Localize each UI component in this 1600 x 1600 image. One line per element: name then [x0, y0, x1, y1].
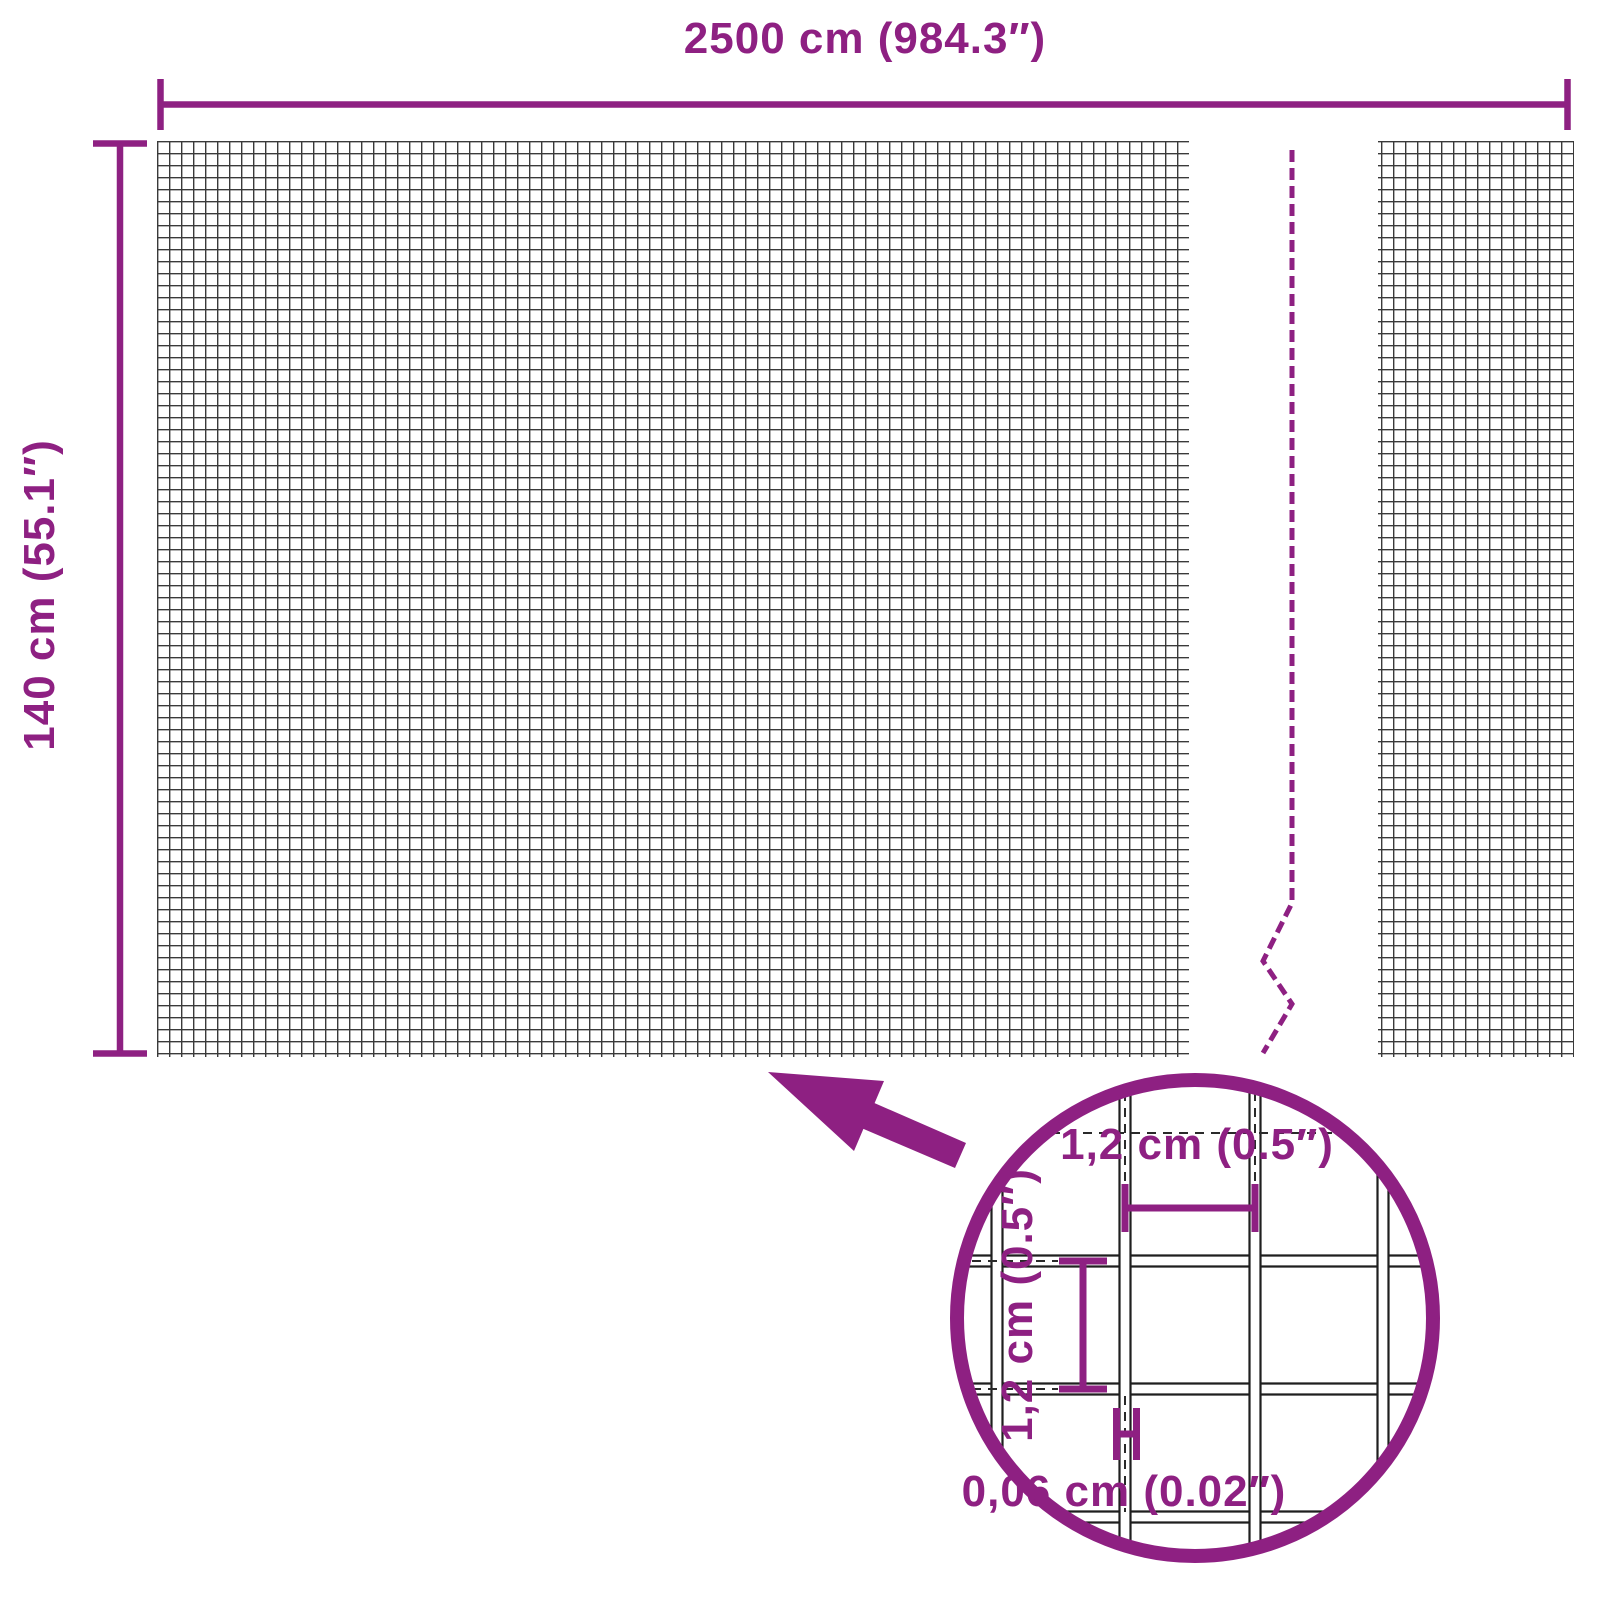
width-dimension-line [160, 79, 1570, 130]
product-dimension-diagram: 2500 cm (984.3″) 140 cm (55.1″) 1,2 cm (… [0, 0, 1600, 1600]
mesh-panel-main [157, 141, 1189, 1057]
wire-thickness-label: 0,06 cm (0.02″) [824, 1467, 1424, 1517]
total-width-label: 2500 cm (984.3″) [540, 14, 1190, 64]
dashed-break-line [1263, 150, 1292, 1053]
arrow-up-left-icon [768, 1072, 966, 1168]
total-height-label: 140 cm (55.1″) [15, 270, 65, 920]
height-dimension-line [93, 143, 147, 1054]
diagram-graphics [0, 0, 1600, 1600]
mesh-panel-right [1378, 141, 1574, 1057]
